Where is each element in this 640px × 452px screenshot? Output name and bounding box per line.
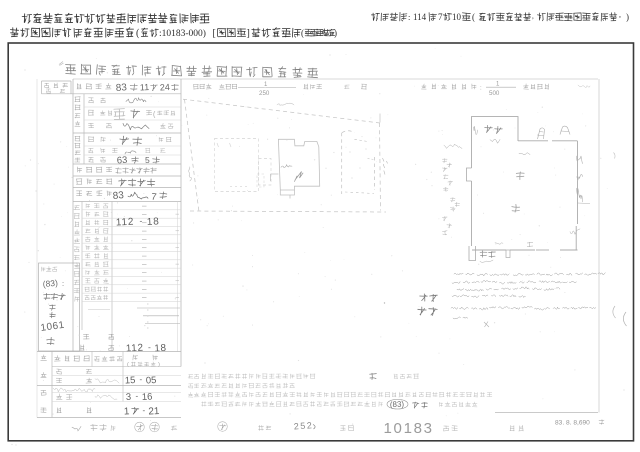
svg-text:500: 500 <box>489 90 500 97</box>
svg-text:,: , <box>532 12 534 20</box>
svg-text:18: 18 <box>147 216 160 228</box>
svg-text:15: 15 <box>125 375 136 387</box>
svg-text:-: - <box>143 406 146 415</box>
svg-text:114: 114 <box>413 12 427 22</box>
svg-text:5: 5 <box>145 155 150 165</box>
svg-text:1: 1 <box>124 406 131 417</box>
svg-text:83: 83 <box>115 82 127 94</box>
svg-text:(: ( <box>472 12 475 22</box>
svg-text:18: 18 <box>154 343 167 355</box>
svg-text:-: - <box>140 216 143 226</box>
svg-text:10183: 10183 <box>384 420 434 437</box>
svg-text:): ) <box>626 12 629 22</box>
svg-text:(: ( <box>301 28 304 38</box>
svg-text:): ) <box>158 362 160 368</box>
svg-text::: : <box>408 12 410 22</box>
svg-text:252: 252 <box>293 420 313 431</box>
svg-text:-: - <box>140 375 143 384</box>
svg-text:112: 112 <box>116 217 135 229</box>
svg-text:◦: ◦ <box>619 14 621 21</box>
svg-text:11: 11 <box>140 82 150 92</box>
svg-text:(83): (83) <box>42 278 58 289</box>
svg-text:[: [ <box>213 28 216 39</box>
svg-text:05: 05 <box>146 375 157 387</box>
svg-text:112: 112 <box>126 343 144 355</box>
svg-text:]: ] <box>247 28 250 39</box>
svg-text:10: 10 <box>452 12 462 22</box>
svg-text:-: - <box>148 342 151 352</box>
svg-text:(83): (83) <box>390 399 405 409</box>
svg-text:-: - <box>136 392 139 401</box>
svg-text:(: ( <box>127 362 129 368</box>
svg-text:250: 250 <box>259 90 270 97</box>
svg-text:): ) <box>334 28 337 38</box>
svg-text::: : <box>62 279 64 288</box>
svg-text:21: 21 <box>148 406 160 418</box>
svg-text::10183-000): :10183-000) <box>159 28 206 39</box>
svg-text:83. 8. 8,690: 83. 8. 8,690 <box>555 420 590 427</box>
svg-text:7: 7 <box>438 12 443 22</box>
svg-text:24: 24 <box>160 82 171 93</box>
svg-text:63: 63 <box>116 155 127 167</box>
svg-text:83: 83 <box>112 190 124 202</box>
